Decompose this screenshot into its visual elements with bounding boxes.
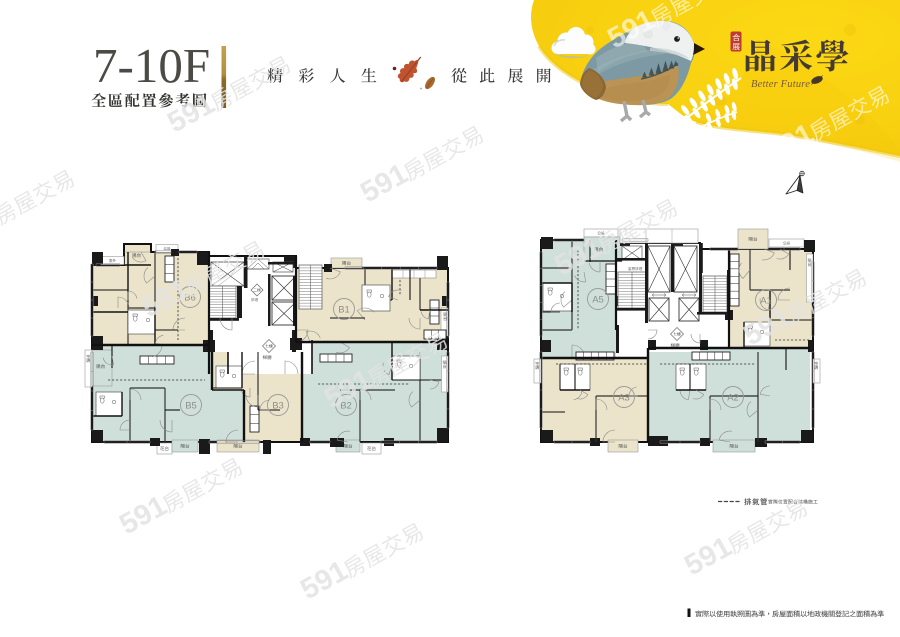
svg-text:B3: B3 <box>272 400 284 411</box>
svg-text:B5: B5 <box>185 400 197 411</box>
svg-text:7-10F: 7-10F <box>93 38 210 93</box>
svg-text:A1: A1 <box>760 295 772 306</box>
svg-text:A5: A5 <box>592 294 604 305</box>
svg-text:B1: B1 <box>338 304 350 315</box>
svg-text:A2: A2 <box>727 392 739 403</box>
svg-text:A3: A3 <box>618 392 630 403</box>
svg-text:Better Future: Better Future <box>751 79 810 90</box>
